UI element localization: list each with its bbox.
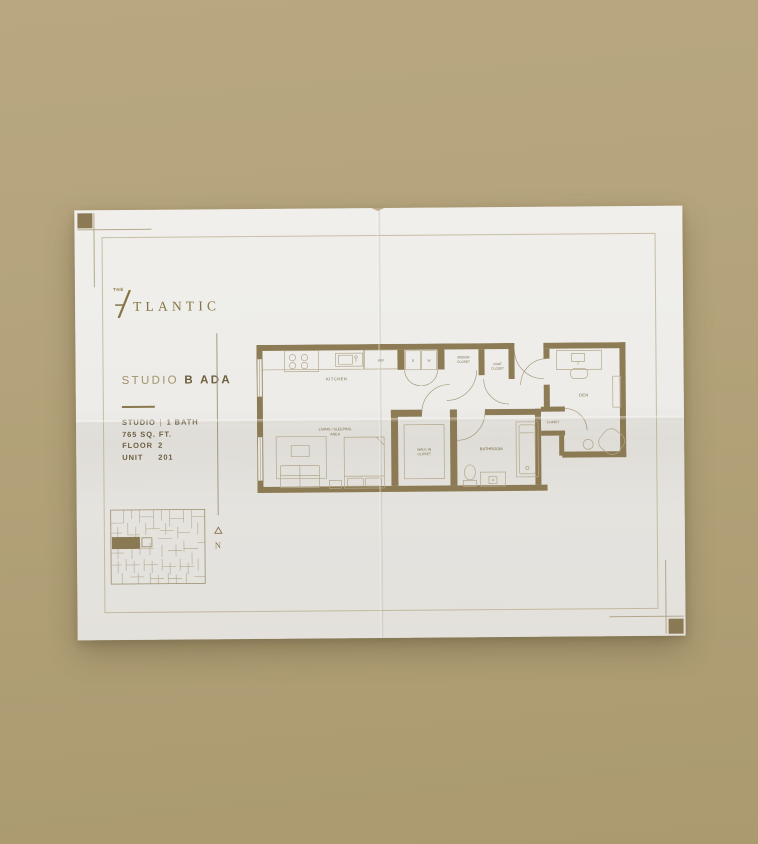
area-value: 765 SQ. FT.: [122, 430, 172, 439]
north-arrow-icon: [213, 526, 222, 534]
corner-line: [77, 229, 151, 231]
furniture: [262, 348, 627, 489]
label-ref: REF: [378, 358, 384, 362]
plan-title-bold: B ADA: [184, 374, 232, 386]
unit-details: STUDIO | 1 BATH 765 SQ. FT. FLOOR 2 UNIT…: [122, 416, 199, 463]
brand-logo: THE TLANTIC: [112, 285, 222, 318]
detail-separator: |: [160, 418, 163, 427]
detail-row-area: 765 SQ. FT.: [122, 428, 199, 440]
label-den: DEN: [579, 392, 589, 397]
plan-title: STUDIO B ADA: [122, 374, 232, 387]
label-broom-1: BROOM: [457, 355, 469, 359]
photo-background: THE TLANTIC STUDIO B ADA STUDIO | 1 BATH…: [0, 0, 758, 844]
detail-row-type: STUDIO | 1 BATH: [122, 416, 199, 428]
unit-label: UNIT: [122, 453, 158, 462]
north-indicator: N: [209, 521, 227, 550]
fold-notch: [371, 208, 384, 211]
label-living-2: AREA: [330, 432, 340, 436]
corner-line: [665, 560, 667, 634]
label-walkin-1: WALK-IN: [417, 448, 432, 452]
unit-floorplan: KITCHEN REF D W BROOM CLOSET COAT CLOSET…: [256, 342, 627, 495]
label-dryer: D: [412, 359, 415, 363]
keyplan-unit-highlight: [112, 537, 140, 549]
corner-square: [669, 619, 684, 634]
unit-value: 201: [158, 453, 173, 462]
detail-row-floor: FLOOR 2: [122, 440, 199, 452]
label-kitchen: KITCHEN: [326, 376, 347, 381]
walls: [256, 342, 626, 493]
label-walkin-2: CLOSET: [417, 452, 431, 456]
label-living-1: LIVING / SLEEPING: [319, 427, 352, 431]
corner-line: [610, 616, 684, 618]
brand-name: TLANTIC: [133, 298, 220, 315]
corner-square: [77, 213, 92, 228]
label-washer: W: [427, 359, 430, 363]
label-coat-2: CLOSET: [491, 367, 504, 371]
building-keyplan: [110, 508, 207, 585]
corner-line: [93, 213, 95, 287]
plan-title-prefix: STUDIO: [122, 375, 179, 387]
label-closet: CLOSET: [547, 420, 560, 424]
floor-value: 2: [158, 441, 163, 450]
label-bathroom: BATHROOM: [480, 446, 503, 451]
label-coat-1: COAT: [493, 362, 502, 366]
north-letter: N: [209, 540, 227, 550]
detail-row-unit: UNIT 201: [122, 451, 199, 463]
bath-label: 1 BATH: [167, 418, 199, 427]
label-broom-2: CLOSET: [457, 360, 470, 364]
logo-a-mark-icon: [115, 290, 133, 318]
floorplan-sheet: THE TLANTIC STUDIO B ADA STUDIO | 1 BATH…: [74, 206, 685, 641]
title-underline: [122, 406, 155, 408]
floor-label: FLOOR: [122, 441, 158, 450]
type-label: STUDIO: [122, 418, 156, 427]
